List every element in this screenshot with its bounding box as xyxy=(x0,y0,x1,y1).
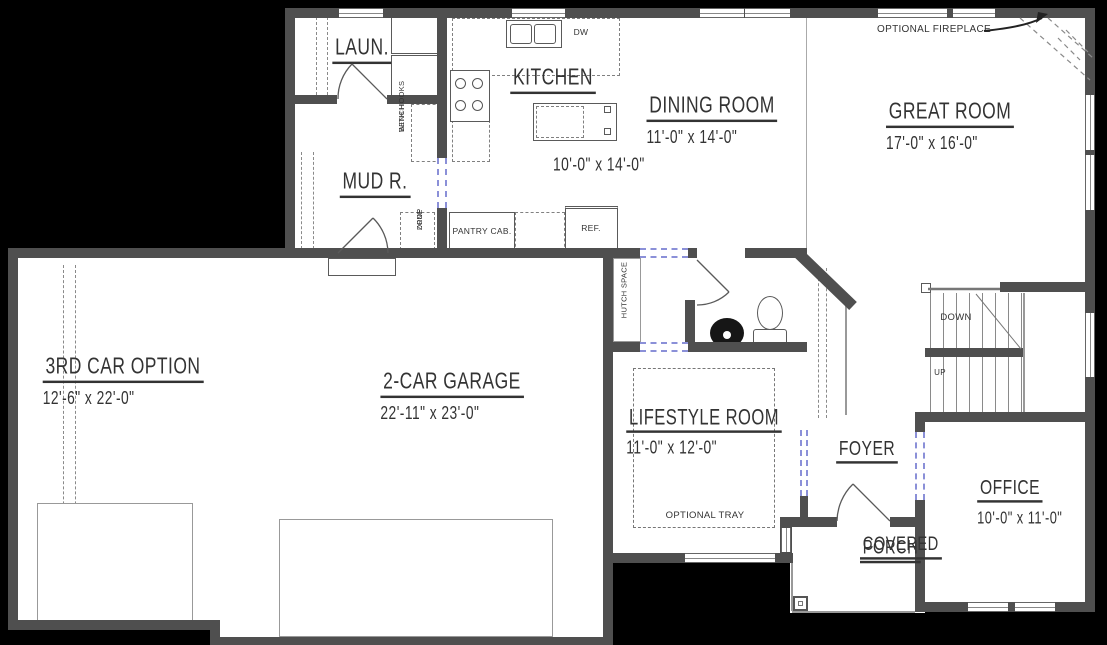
newel-post xyxy=(921,283,931,293)
closet-door-panel xyxy=(845,303,847,415)
wall xyxy=(915,412,925,433)
cased-opening xyxy=(800,430,808,496)
wall xyxy=(1000,282,1085,292)
island-post xyxy=(604,106,611,113)
room-name: 2-CAR GARAGE xyxy=(380,370,523,398)
room-name: FOYER xyxy=(836,438,898,463)
room-name: OFFICE xyxy=(977,477,1043,502)
mud-closet-dashes xyxy=(301,152,314,249)
room-label-laundry: LAUN. xyxy=(332,36,391,64)
room-divider-line xyxy=(806,18,807,248)
bench-label-line2: WITH HOOKS xyxy=(397,81,406,132)
room-label-third-car: 3RD CAR OPTION 12'-6" x 22'-0" xyxy=(43,355,204,383)
room-name: MUD R. xyxy=(340,170,410,198)
burner xyxy=(455,78,466,89)
room-name: DINING ROOM xyxy=(647,94,778,122)
cased-opening xyxy=(640,248,688,258)
wall xyxy=(745,248,807,258)
room-name: LAUN. xyxy=(332,36,391,64)
room-label-garage: 2-CAR GARAGE 22'-11" x 23'-0" xyxy=(380,370,523,398)
porch-post xyxy=(793,596,808,611)
stairs-up-run xyxy=(930,357,1025,412)
wall xyxy=(8,248,18,630)
hutch-space-label: HUTCH SPACE xyxy=(620,262,629,319)
room-dims: 10'-0" x 11'-0" xyxy=(977,507,1062,527)
window xyxy=(1085,95,1095,150)
wall xyxy=(437,207,447,252)
dw-label: DW xyxy=(574,27,589,37)
stair-landing-wall xyxy=(925,348,1025,357)
room-dims: 11'-0" x 14'-0" xyxy=(647,127,738,148)
optional-fireplace-note: OPTIONAL FIREPLACE xyxy=(877,24,991,35)
window xyxy=(1085,155,1095,210)
room-dims: 22'-11" x 23'-0" xyxy=(380,403,479,424)
room-label-great: GREAT ROOM 17'-0" x 16'-0" xyxy=(886,100,1014,128)
wall xyxy=(8,620,220,630)
window xyxy=(700,8,744,18)
room-dims: 12'-6" x 22'-0" xyxy=(43,388,135,409)
room-name-line2: PORCH xyxy=(860,539,921,563)
wall xyxy=(437,8,447,160)
sink-basin xyxy=(510,24,532,44)
room-label-kitchen: KITCHEN xyxy=(510,66,595,94)
wall xyxy=(890,517,918,527)
room-label-foyer: FOYER xyxy=(836,438,898,463)
window xyxy=(968,602,1008,612)
floor-plan: LAUN. KITCHEN 10'-0" x 14'-0" DINING ROO… xyxy=(0,0,1107,645)
room-name: LIFESTYLE ROOM xyxy=(626,406,782,433)
window xyxy=(685,553,730,563)
burner xyxy=(472,78,483,89)
wall xyxy=(8,248,613,258)
garage-door-panel xyxy=(37,503,193,622)
pantry-label: PANTRY CAB. xyxy=(452,226,511,236)
wall xyxy=(285,8,295,258)
porch-edge xyxy=(792,611,915,613)
window xyxy=(1085,313,1095,377)
stairs-down-label: DOWN xyxy=(940,312,971,323)
drop-zone-line2: ZONE xyxy=(417,209,425,230)
room-dims: 11'-0" x 12'-0" xyxy=(626,438,717,459)
stairs-up-label: UP xyxy=(934,368,946,377)
room-dims: 10'-0" x 14'-0" xyxy=(553,155,645,176)
window xyxy=(512,8,565,18)
stair-edge xyxy=(1023,293,1025,412)
optional-tray-note: OPTIONAL TRAY xyxy=(666,510,745,521)
room-label-office: OFFICE 10'-0" x 11'-0" xyxy=(977,477,1043,502)
room-label-dining: DINING ROOM 11'-0" x 14'-0" xyxy=(647,94,778,122)
window xyxy=(730,553,775,563)
cased-opening xyxy=(915,432,925,500)
window xyxy=(878,8,947,18)
range xyxy=(450,70,490,122)
garage-door-panel xyxy=(279,519,553,637)
wall xyxy=(613,248,640,258)
wall xyxy=(603,553,685,563)
hall-closet-dashes xyxy=(818,268,827,418)
wall xyxy=(603,248,613,645)
burner xyxy=(472,100,483,111)
sink-basin xyxy=(534,24,556,44)
window xyxy=(1015,602,1055,612)
wall xyxy=(775,553,793,563)
room-label-lifestyle: LIFESTYLE ROOM 11'-0" x 12'-0" xyxy=(626,406,782,433)
toilet-bowl xyxy=(757,296,783,330)
laundry-cabinet-dashes xyxy=(316,12,328,95)
island-post xyxy=(604,128,611,135)
island-overhang xyxy=(536,106,584,138)
wall xyxy=(688,248,697,258)
ref-label: REF. xyxy=(581,223,601,233)
room-label-mud: MUD R. xyxy=(340,170,410,198)
window xyxy=(745,8,790,18)
room-dims: 17'-0" x 16'-0" xyxy=(886,133,978,154)
burner xyxy=(455,100,466,111)
window xyxy=(781,528,791,552)
bath-sink-drain xyxy=(723,331,731,339)
cased-opening xyxy=(640,342,688,352)
room-name: 3RD CAR OPTION xyxy=(43,355,204,383)
wall xyxy=(613,342,640,352)
window xyxy=(339,8,383,18)
wall xyxy=(915,412,1095,422)
wall xyxy=(285,95,337,104)
window xyxy=(953,8,995,18)
cased-opening xyxy=(437,158,447,208)
base-cabinet xyxy=(515,212,565,252)
wall xyxy=(688,342,807,352)
wall xyxy=(210,637,613,645)
washer xyxy=(391,13,439,54)
mud-step xyxy=(328,258,396,276)
room-name: GREAT ROOM xyxy=(886,100,1014,128)
room-name: KITCHEN xyxy=(510,66,595,94)
